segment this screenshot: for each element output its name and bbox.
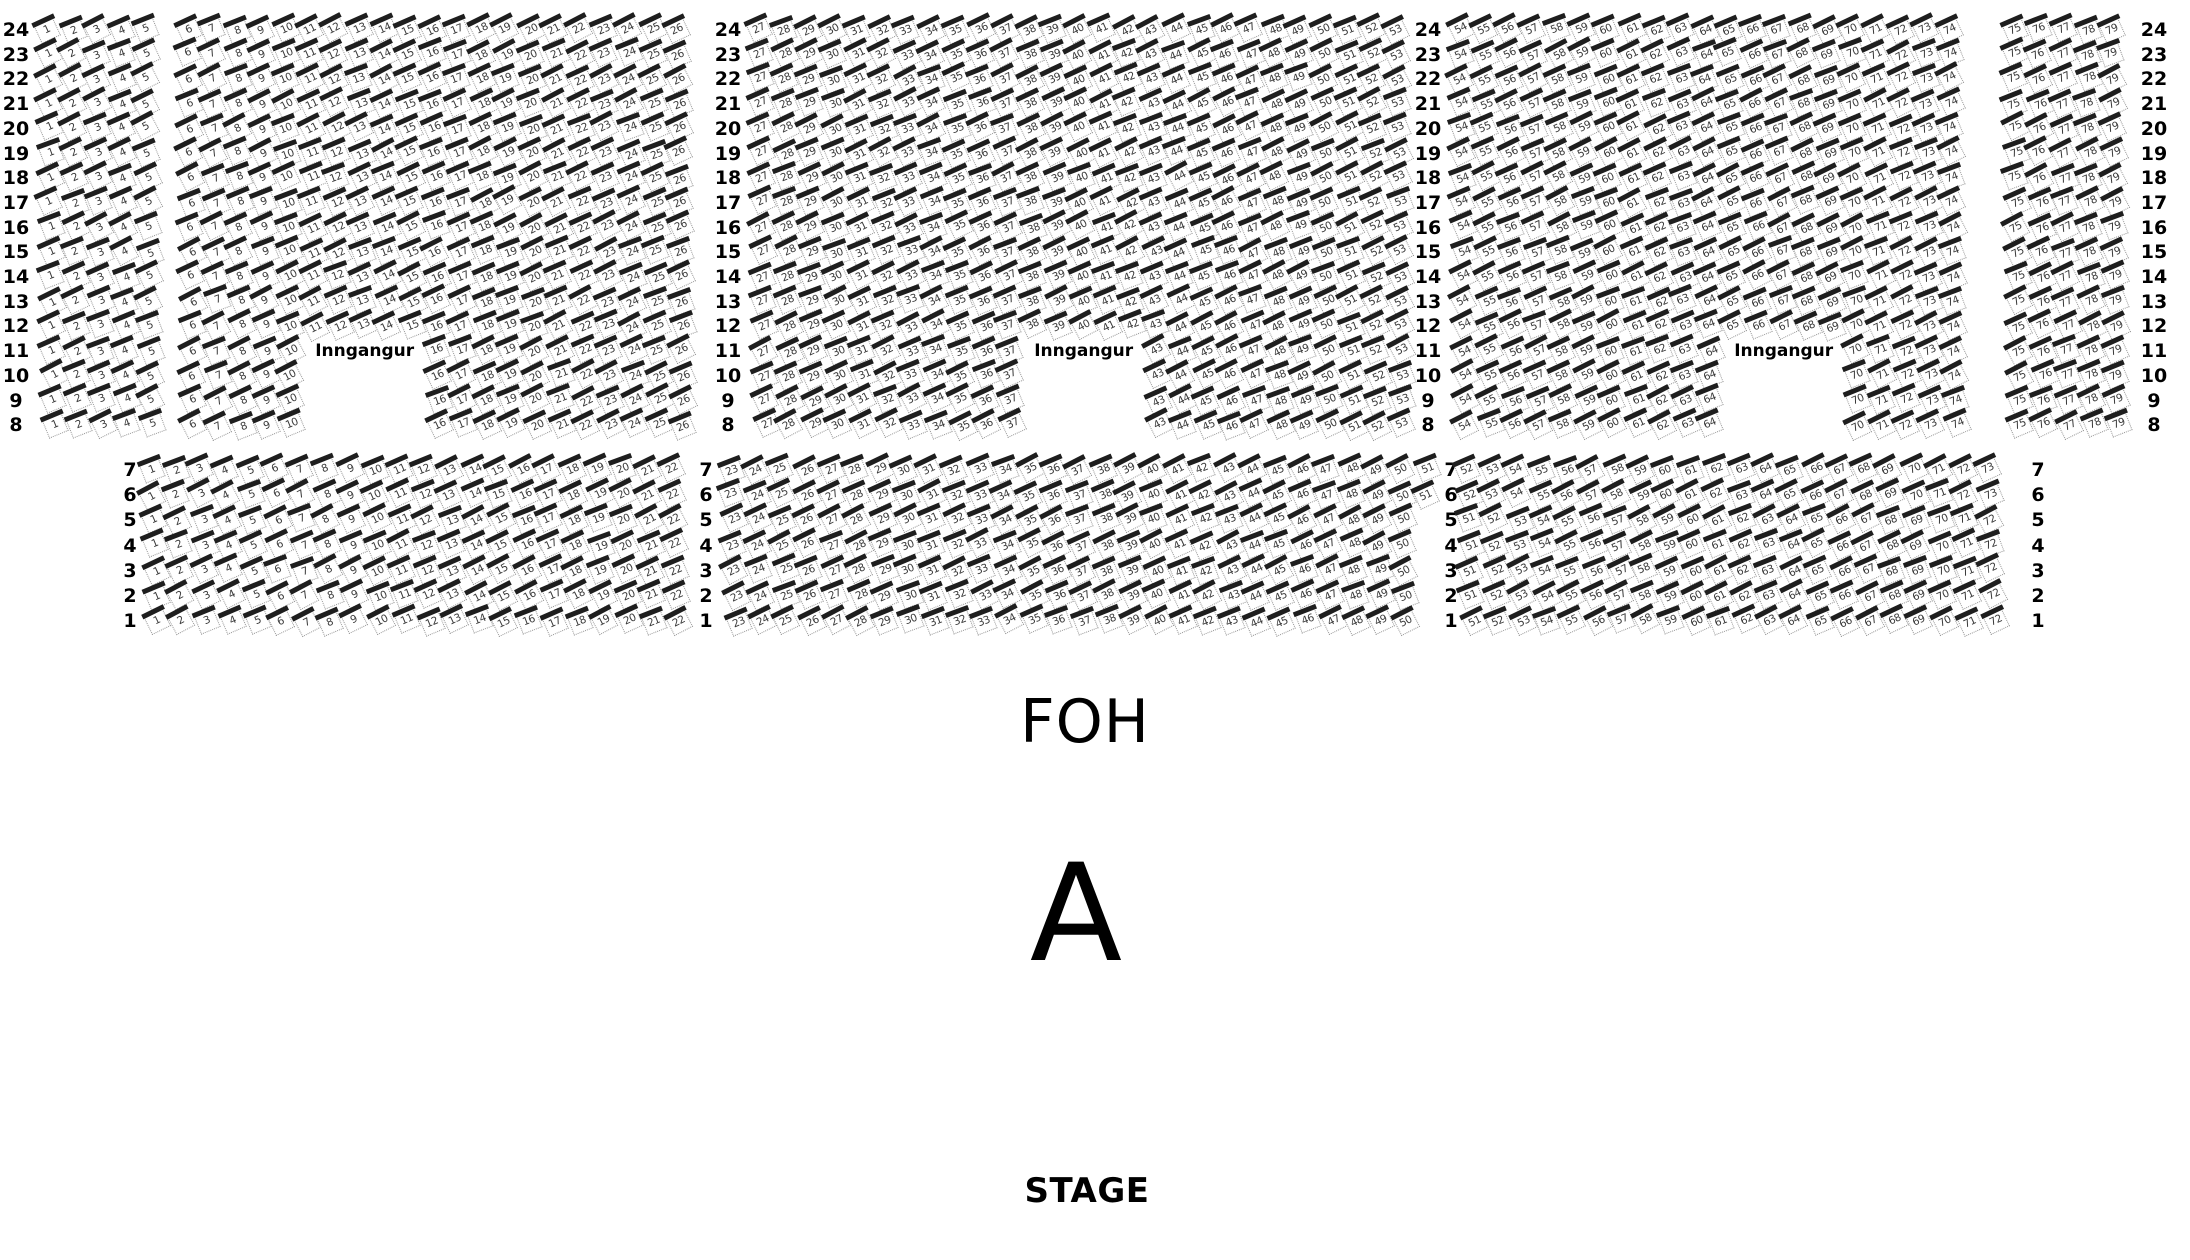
seat[interactable]: 49 bbox=[1289, 165, 1316, 192]
seat[interactable]: 16 bbox=[515, 607, 542, 634]
seat[interactable]: 53 bbox=[1388, 335, 1416, 363]
seat[interactable]: 40 bbox=[1067, 212, 1095, 240]
seat[interactable]: 20 bbox=[524, 412, 552, 440]
seat[interactable]: 68 bbox=[1791, 90, 1818, 117]
seat[interactable]: 13 bbox=[441, 606, 469, 634]
seat[interactable]: 64 bbox=[1752, 455, 1780, 483]
seat[interactable]: 61 bbox=[1618, 41, 1646, 69]
seat[interactable]: 26 bbox=[799, 608, 827, 636]
seat[interactable]: 44 bbox=[1169, 413, 1196, 440]
seat[interactable]: 57 bbox=[1608, 607, 1635, 634]
seat[interactable]: 56 bbox=[1499, 239, 1526, 266]
seat[interactable]: 45 bbox=[1264, 457, 1291, 484]
seat[interactable]: 31 bbox=[847, 214, 875, 242]
seat[interactable]: 72 bbox=[1892, 412, 1920, 440]
seat[interactable]: 71 bbox=[1867, 336, 1894, 363]
seat[interactable]: 11 bbox=[393, 607, 421, 635]
seat[interactable]: 22 bbox=[665, 608, 693, 636]
seat[interactable]: 59 bbox=[1569, 65, 1596, 92]
seat[interactable]: 10 bbox=[272, 66, 299, 93]
seat[interactable]: 24 bbox=[620, 264, 647, 291]
seat[interactable]: 77 bbox=[2054, 362, 2081, 389]
seat[interactable]: 42 bbox=[1117, 263, 1144, 290]
seat[interactable]: 37 bbox=[996, 361, 1024, 389]
seat[interactable]: 1 bbox=[143, 607, 171, 635]
seat[interactable]: 72 bbox=[1982, 607, 2010, 635]
seat[interactable]: 49 bbox=[1285, 65, 1312, 92]
seat[interactable]: 30 bbox=[819, 16, 847, 44]
seat[interactable]: 42 bbox=[1194, 582, 1222, 610]
seat[interactable]: 31 bbox=[919, 557, 947, 585]
seat[interactable]: 49 bbox=[1290, 337, 1317, 364]
seat[interactable]: 70 bbox=[1838, 65, 1866, 93]
seat[interactable]: 62 bbox=[1730, 531, 1758, 559]
seat[interactable]: 47 bbox=[1241, 411, 1269, 439]
seat[interactable]: 62 bbox=[1702, 480, 1730, 508]
seat[interactable]: 3 bbox=[85, 114, 112, 141]
seat[interactable]: 56 bbox=[1582, 582, 1610, 610]
seat[interactable]: 15 bbox=[488, 505, 516, 533]
seat[interactable]: 36 bbox=[973, 361, 1000, 388]
seat[interactable]: 35 bbox=[946, 262, 973, 289]
seat[interactable]: 10 bbox=[363, 457, 390, 484]
seat[interactable]: 18 bbox=[468, 15, 496, 43]
seat[interactable]: 4 bbox=[109, 41, 136, 68]
seat[interactable]: 21 bbox=[549, 411, 577, 439]
seat[interactable]: 10 bbox=[273, 115, 300, 142]
seat[interactable]: 11 bbox=[302, 314, 330, 342]
seat[interactable]: 8 bbox=[227, 263, 254, 290]
seat[interactable]: 76 bbox=[2029, 311, 2057, 339]
seat[interactable]: 30 bbox=[897, 607, 924, 634]
seat[interactable]: 33 bbox=[895, 189, 923, 217]
seat[interactable]: 57 bbox=[1521, 90, 1549, 118]
seat[interactable]: 7 bbox=[201, 213, 229, 241]
seat[interactable]: 33 bbox=[897, 287, 924, 314]
seat[interactable]: 43 bbox=[1142, 312, 1169, 339]
seat[interactable]: 9 bbox=[248, 65, 276, 93]
seat[interactable]: 48 bbox=[1260, 40, 1288, 68]
seat[interactable]: 7 bbox=[292, 608, 320, 636]
seat[interactable]: 55 bbox=[1529, 458, 1556, 485]
seat[interactable]: 47 bbox=[1319, 607, 1347, 635]
seat[interactable]: 10 bbox=[273, 15, 301, 43]
seat[interactable]: 5 bbox=[132, 15, 159, 42]
seat[interactable]: 67 bbox=[1770, 288, 1797, 315]
seat[interactable]: 3 bbox=[86, 213, 114, 241]
seat[interactable]: 2 bbox=[166, 581, 194, 609]
seat[interactable]: 21 bbox=[543, 90, 571, 118]
seat[interactable]: 77 bbox=[2050, 140, 2078, 168]
seat[interactable]: 34 bbox=[990, 482, 1018, 510]
seat[interactable]: 55 bbox=[1476, 288, 1504, 316]
seat[interactable]: 64 bbox=[1696, 311, 1723, 338]
seat[interactable]: 44 bbox=[1167, 313, 1195, 341]
seat[interactable]: 58 bbox=[1632, 606, 1660, 634]
seat[interactable]: 57 bbox=[1522, 213, 1550, 241]
seat[interactable]: 79 bbox=[2098, 40, 2125, 67]
seat[interactable]: 17 bbox=[541, 609, 569, 637]
seat[interactable]: 58 bbox=[1547, 188, 1575, 216]
seat[interactable]: 77 bbox=[2051, 214, 2079, 242]
seat[interactable]: 14 bbox=[374, 313, 402, 341]
seat[interactable]: 53 bbox=[1386, 237, 1414, 265]
seat[interactable]: 52 bbox=[1484, 608, 1511, 635]
seat[interactable]: 70 bbox=[1844, 362, 1871, 389]
seat[interactable]: 55 bbox=[1556, 558, 1583, 585]
seat[interactable]: 50 bbox=[1390, 558, 1418, 586]
seat[interactable]: 41 bbox=[1092, 237, 1119, 264]
seat[interactable]: 64 bbox=[1781, 581, 1809, 609]
seat[interactable]: 66 bbox=[1745, 312, 1772, 339]
seat[interactable]: 39 bbox=[1044, 212, 1072, 240]
seat[interactable]: 57 bbox=[1604, 507, 1631, 534]
seat[interactable]: 45 bbox=[1190, 64, 1217, 91]
seat[interactable]: 11 bbox=[300, 288, 328, 316]
seat[interactable]: 66 bbox=[1832, 609, 1860, 637]
seat[interactable]: 42 bbox=[1116, 212, 1144, 240]
seat[interactable]: 4 bbox=[219, 607, 247, 635]
seat[interactable]: 28 bbox=[771, 65, 799, 93]
seat[interactable]: 71 bbox=[1865, 138, 1893, 166]
seat[interactable]: 39 bbox=[1115, 455, 1143, 483]
seat[interactable]: 43 bbox=[1141, 287, 1169, 315]
seat[interactable]: 16 bbox=[512, 481, 540, 509]
seat[interactable]: 36 bbox=[1040, 456, 1068, 484]
seat[interactable]: 19 bbox=[498, 410, 526, 438]
seat[interactable]: 71 bbox=[1951, 505, 1978, 532]
seat[interactable]: 4 bbox=[218, 581, 246, 609]
seat[interactable]: 2 bbox=[64, 386, 91, 413]
seat[interactable]: 46 bbox=[1216, 262, 1243, 289]
seat[interactable]: 1 bbox=[37, 262, 64, 289]
seat[interactable]: 48 bbox=[1268, 412, 1296, 440]
seat[interactable]: 42 bbox=[1193, 558, 1220, 585]
seat[interactable]: 26 bbox=[668, 262, 696, 290]
seat[interactable]: 55 bbox=[1558, 582, 1586, 610]
seat[interactable]: 19 bbox=[491, 15, 519, 43]
seat[interactable]: 39 bbox=[1120, 606, 1148, 634]
seat[interactable]: 33 bbox=[967, 530, 995, 558]
seat[interactable]: 22 bbox=[567, 163, 595, 191]
seat[interactable]: 49 bbox=[1291, 413, 1319, 441]
seat[interactable]: 8 bbox=[314, 531, 342, 559]
seat[interactable]: 46 bbox=[1289, 507, 1317, 535]
seat[interactable]: 51 bbox=[1337, 286, 1365, 314]
seat[interactable]: 73 bbox=[1915, 264, 1943, 292]
seat[interactable]: 3 bbox=[85, 163, 113, 191]
seat[interactable]: 53 bbox=[1385, 114, 1412, 141]
seat[interactable]: 1 bbox=[35, 40, 63, 68]
seat[interactable]: 42 bbox=[1117, 166, 1144, 193]
seat[interactable]: 41 bbox=[1168, 558, 1195, 585]
seat[interactable]: 26 bbox=[670, 387, 698, 415]
seat[interactable]: 1 bbox=[38, 214, 65, 241]
seat[interactable]: 12 bbox=[325, 263, 352, 290]
seat[interactable]: 6 bbox=[176, 214, 203, 241]
seat[interactable]: 75 bbox=[2005, 287, 2033, 315]
seat[interactable]: 27 bbox=[750, 338, 778, 366]
seat[interactable]: 44 bbox=[1163, 15, 1191, 43]
seat[interactable]: 29 bbox=[801, 311, 828, 338]
seat[interactable]: 60 bbox=[1679, 506, 1707, 534]
seat[interactable]: 9 bbox=[251, 188, 278, 215]
seat[interactable]: 43 bbox=[1138, 65, 1166, 93]
seat[interactable]: 2 bbox=[167, 606, 195, 634]
seat[interactable]: 64 bbox=[1697, 410, 1724, 437]
seat[interactable]: 77 bbox=[2052, 188, 2079, 215]
seat[interactable]: 14 bbox=[373, 188, 401, 216]
seat[interactable]: 38 bbox=[1019, 311, 1047, 339]
seat[interactable]: 2 bbox=[60, 139, 88, 167]
seat[interactable]: 61 bbox=[1619, 15, 1647, 43]
seat[interactable]: 18 bbox=[566, 609, 593, 636]
seat[interactable]: 46 bbox=[1213, 140, 1241, 168]
seat[interactable]: 32 bbox=[867, 40, 895, 68]
seat[interactable]: 42 bbox=[1192, 506, 1219, 533]
seat[interactable]: 32 bbox=[873, 238, 900, 265]
seat[interactable]: 72 bbox=[1888, 90, 1916, 118]
seat[interactable]: 19 bbox=[497, 337, 524, 364]
seat[interactable]: 78 bbox=[2081, 410, 2108, 437]
seat[interactable]: 43 bbox=[1216, 507, 1243, 534]
seat[interactable]: 38 bbox=[1094, 505, 1121, 532]
seat[interactable]: 74 bbox=[1940, 313, 1968, 341]
seat[interactable]: 9 bbox=[253, 361, 281, 389]
seat[interactable]: 72 bbox=[1891, 163, 1918, 190]
seat[interactable]: 74 bbox=[1938, 138, 1966, 166]
seat[interactable]: 37 bbox=[994, 287, 1022, 315]
seat[interactable]: 55 bbox=[1473, 163, 1501, 191]
seat[interactable]: 20 bbox=[609, 455, 636, 482]
seat[interactable]: 14 bbox=[373, 164, 400, 191]
seat[interactable]: 57 bbox=[1519, 65, 1547, 93]
seat[interactable]: 62 bbox=[1646, 214, 1674, 242]
seat[interactable]: 29 bbox=[796, 90, 823, 117]
seat[interactable]: 25 bbox=[768, 480, 796, 508]
seat[interactable]: 16 bbox=[424, 337, 451, 364]
seat[interactable]: 46 bbox=[1215, 238, 1242, 265]
seat[interactable]: 78 bbox=[2078, 361, 2105, 388]
seat[interactable]: 8 bbox=[229, 311, 257, 339]
seat[interactable]: 32 bbox=[946, 608, 973, 635]
seat[interactable]: 56 bbox=[1500, 311, 1528, 339]
seat[interactable]: 56 bbox=[1500, 362, 1528, 390]
seat[interactable]: 37 bbox=[995, 214, 1023, 242]
seat[interactable]: 49 bbox=[1290, 311, 1318, 339]
seat[interactable]: 73 bbox=[1916, 337, 1944, 365]
seat[interactable]: 53 bbox=[1388, 410, 1416, 438]
seat[interactable]: 23 bbox=[594, 212, 622, 240]
seat[interactable]: 73 bbox=[1914, 163, 1942, 191]
seat[interactable]: 33 bbox=[898, 385, 926, 413]
seat[interactable]: 3 bbox=[191, 556, 219, 584]
seat[interactable]: 26 bbox=[663, 16, 691, 44]
seat[interactable]: 48 bbox=[1263, 262, 1291, 290]
seat[interactable]: 57 bbox=[1577, 457, 1605, 485]
seat[interactable]: 74 bbox=[1936, 64, 1964, 92]
seat[interactable]: 24 bbox=[744, 532, 772, 560]
seat[interactable]: 13 bbox=[346, 15, 374, 43]
seat[interactable]: 74 bbox=[1938, 188, 1966, 216]
seat[interactable]: 50 bbox=[1311, 40, 1339, 68]
seat[interactable]: 40 bbox=[1143, 581, 1171, 609]
seat[interactable]: 78 bbox=[2078, 287, 2106, 315]
seat[interactable]: 48 bbox=[1268, 388, 1295, 415]
seat[interactable]: 3 bbox=[83, 89, 111, 117]
seat[interactable]: 43 bbox=[1218, 609, 1245, 636]
seat[interactable]: 23 bbox=[592, 139, 620, 167]
seat[interactable]: 73 bbox=[1916, 213, 1943, 240]
seat[interactable]: 22 bbox=[658, 455, 686, 483]
seat[interactable]: 28 bbox=[776, 237, 804, 265]
seat[interactable]: 7 bbox=[291, 582, 319, 610]
seat[interactable]: 37 bbox=[993, 163, 1021, 191]
seat[interactable]: 67 bbox=[1766, 139, 1794, 167]
seat[interactable]: 64 bbox=[1696, 386, 1723, 413]
seat[interactable]: 28 bbox=[774, 287, 801, 314]
seat[interactable]: 36 bbox=[969, 189, 997, 217]
seat[interactable]: 38 bbox=[1091, 457, 1119, 485]
seat[interactable]: 51 bbox=[1461, 608, 1489, 636]
seat[interactable]: 53 bbox=[1383, 42, 1411, 70]
seat[interactable]: 54 bbox=[1448, 115, 1475, 142]
seat[interactable]: 6 bbox=[177, 262, 205, 290]
seat[interactable]: 79 bbox=[2105, 411, 2132, 438]
seat[interactable]: 14 bbox=[462, 480, 490, 508]
seat[interactable]: 28 bbox=[773, 164, 800, 191]
seat[interactable]: 6 bbox=[177, 91, 204, 118]
seat[interactable]: 61 bbox=[1705, 557, 1733, 585]
seat[interactable]: 9 bbox=[251, 286, 279, 314]
seat[interactable]: 5 bbox=[135, 214, 162, 241]
seat[interactable]: 31 bbox=[849, 385, 877, 413]
seat[interactable]: 50 bbox=[1390, 505, 1418, 533]
seat[interactable]: 39 bbox=[1119, 557, 1146, 584]
seat[interactable]: 9 bbox=[340, 606, 368, 634]
seat[interactable]: 31 bbox=[846, 164, 873, 191]
seat[interactable]: 75 bbox=[2002, 214, 2030, 242]
seat[interactable]: 1 bbox=[141, 531, 168, 558]
seat[interactable]: 25 bbox=[642, 114, 670, 142]
seat[interactable]: 5 bbox=[136, 312, 163, 339]
seat[interactable]: 22 bbox=[662, 557, 689, 584]
seat[interactable]: 65 bbox=[1719, 114, 1746, 141]
seat[interactable]: 45 bbox=[1265, 532, 1292, 559]
seat[interactable]: 63 bbox=[1671, 363, 1698, 390]
seat[interactable]: 38 bbox=[1017, 41, 1044, 68]
seat[interactable]: 12 bbox=[320, 15, 348, 43]
seat[interactable]: 19 bbox=[590, 607, 618, 635]
seat[interactable]: 56 bbox=[1580, 506, 1607, 533]
seat[interactable]: 31 bbox=[848, 262, 876, 290]
seat[interactable]: 12 bbox=[323, 139, 350, 166]
seat[interactable]: 55 bbox=[1476, 336, 1504, 364]
seat[interactable]: 4 bbox=[111, 238, 139, 266]
seat[interactable]: 78 bbox=[2076, 188, 2104, 216]
seat[interactable]: 15 bbox=[490, 582, 518, 610]
seat[interactable]: 76 bbox=[2030, 410, 2058, 438]
seat[interactable]: 27 bbox=[751, 312, 779, 340]
seat[interactable]: 68 bbox=[1792, 188, 1819, 215]
seat[interactable]: 40 bbox=[1063, 16, 1091, 44]
seat[interactable]: 21 bbox=[638, 582, 666, 610]
seat[interactable]: 60 bbox=[1652, 481, 1680, 509]
seat[interactable]: 29 bbox=[798, 188, 825, 215]
seat[interactable]: 29 bbox=[797, 213, 825, 241]
seat[interactable]: 8 bbox=[225, 65, 252, 92]
seat[interactable]: 56 bbox=[1496, 91, 1524, 119]
seat[interactable]: 61 bbox=[1618, 113, 1646, 141]
seat[interactable]: 48 bbox=[1339, 482, 1366, 509]
seat[interactable]: 38 bbox=[1020, 263, 1047, 290]
seat[interactable]: 9 bbox=[339, 506, 367, 534]
seat[interactable]: 43 bbox=[1220, 583, 1247, 610]
seat[interactable]: 47 bbox=[1242, 361, 1270, 389]
seat[interactable]: 16 bbox=[423, 286, 451, 314]
seat[interactable]: 17 bbox=[541, 581, 569, 609]
seat[interactable]: 7 bbox=[204, 412, 232, 440]
seat[interactable]: 10 bbox=[364, 505, 392, 533]
seat[interactable]: 50 bbox=[1392, 608, 1420, 636]
seat[interactable]: 52 bbox=[1362, 312, 1390, 340]
seat[interactable]: 8 bbox=[225, 238, 253, 266]
seat[interactable]: 6 bbox=[176, 164, 204, 192]
seat[interactable]: 16 bbox=[424, 213, 451, 240]
seat[interactable]: 13 bbox=[348, 214, 376, 242]
seat[interactable]: 22 bbox=[661, 530, 689, 558]
seat[interactable]: 27 bbox=[821, 582, 848, 609]
seat[interactable]: 63 bbox=[1668, 114, 1695, 141]
seat[interactable]: 34 bbox=[921, 286, 949, 314]
seat[interactable]: 66 bbox=[1802, 455, 1830, 483]
seat[interactable]: 25 bbox=[639, 66, 667, 94]
seat[interactable]: 7 bbox=[203, 313, 231, 341]
seat[interactable]: 37 bbox=[992, 90, 1020, 118]
seat[interactable]: 53 bbox=[1389, 362, 1416, 389]
seat[interactable]: 68 bbox=[1792, 240, 1819, 267]
seat[interactable]: 76 bbox=[2028, 238, 2056, 266]
seat[interactable]: 9 bbox=[251, 213, 279, 241]
seat[interactable]: 69 bbox=[1814, 41, 1841, 68]
seat[interactable]: 72 bbox=[1950, 456, 1978, 484]
seat[interactable]: 64 bbox=[1692, 17, 1720, 45]
seat[interactable]: 22 bbox=[663, 582, 691, 610]
seat[interactable]: 51 bbox=[1337, 163, 1365, 191]
seat[interactable]: 41 bbox=[1090, 65, 1118, 93]
seat[interactable]: 20 bbox=[520, 163, 548, 191]
seat[interactable]: 55 bbox=[1559, 607, 1587, 635]
seat[interactable]: 45 bbox=[1195, 412, 1223, 440]
seat[interactable]: 76 bbox=[2024, 41, 2052, 69]
seat[interactable]: 27 bbox=[818, 456, 845, 483]
seat[interactable]: 6 bbox=[266, 531, 294, 559]
seat[interactable]: 58 bbox=[1603, 481, 1631, 509]
seat[interactable]: 62 bbox=[1642, 66, 1669, 93]
seat[interactable]: 63 bbox=[1754, 557, 1781, 584]
seat[interactable]: 6 bbox=[267, 608, 295, 636]
seat[interactable]: 16 bbox=[514, 531, 542, 559]
seat[interactable]: 18 bbox=[469, 164, 496, 191]
seat[interactable]: 63 bbox=[1670, 138, 1698, 166]
seat[interactable]: 55 bbox=[1470, 16, 1498, 44]
seat[interactable]: 73 bbox=[1911, 15, 1939, 43]
seat[interactable]: 40 bbox=[1068, 165, 1095, 192]
seat[interactable]: 52 bbox=[1483, 582, 1511, 610]
seat[interactable]: 65 bbox=[1805, 557, 1833, 585]
seat[interactable]: 17 bbox=[446, 139, 473, 166]
seat[interactable]: 5 bbox=[139, 410, 166, 437]
